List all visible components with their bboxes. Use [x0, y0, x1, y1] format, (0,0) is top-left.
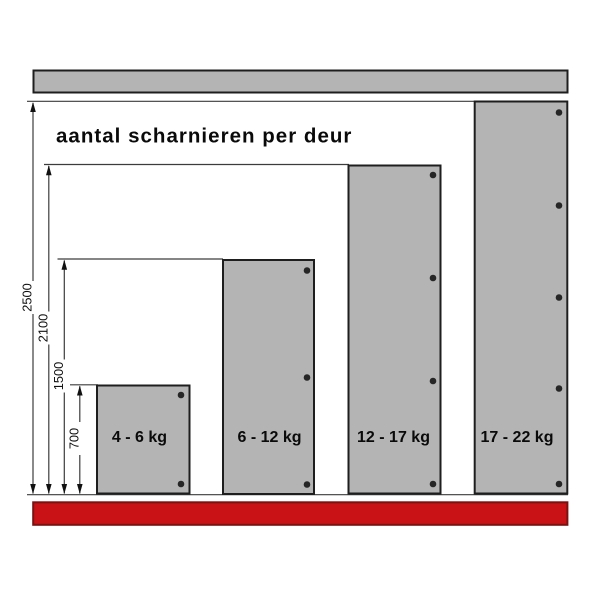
svg-text:6 - 12 kg: 6 - 12 kg [237, 429, 301, 446]
svg-text:700: 700 [66, 428, 81, 449]
svg-text:12 - 17 kg: 12 - 17 kg [357, 429, 430, 446]
svg-text:2100: 2100 [35, 314, 50, 342]
svg-text:aantal scharnieren per deur: aantal scharnieren per deur [56, 125, 352, 148]
svg-text:1500: 1500 [51, 362, 66, 390]
svg-text:2500: 2500 [20, 283, 35, 311]
svg-text:17 - 22 kg: 17 - 22 kg [481, 429, 554, 446]
svg-text:4 - 6 kg: 4 - 6 kg [112, 429, 167, 446]
